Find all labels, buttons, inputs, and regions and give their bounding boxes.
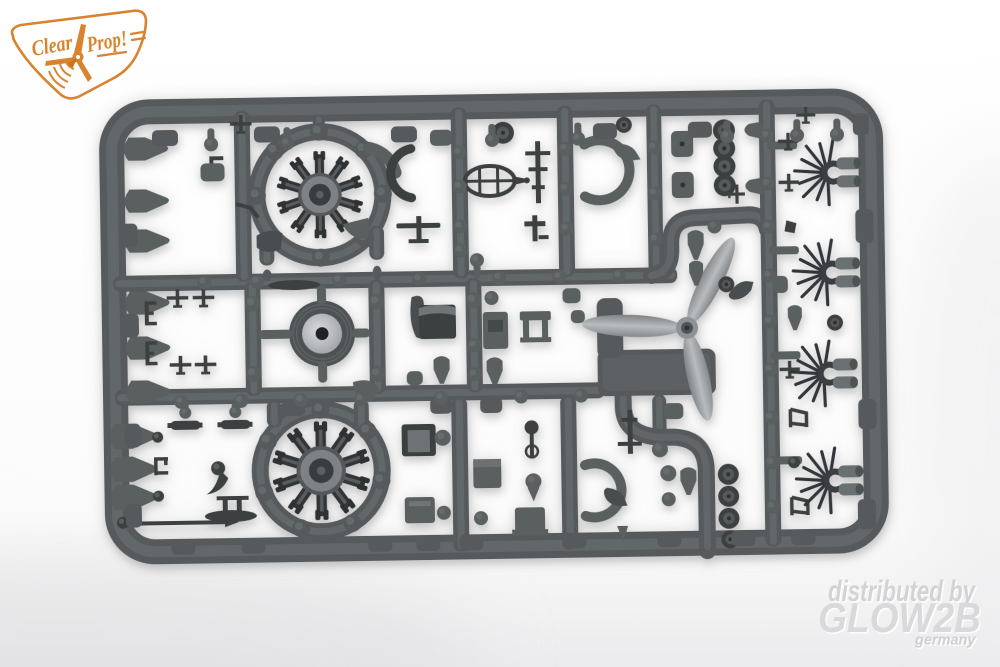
svg-text:germany: germany bbox=[914, 633, 976, 649]
